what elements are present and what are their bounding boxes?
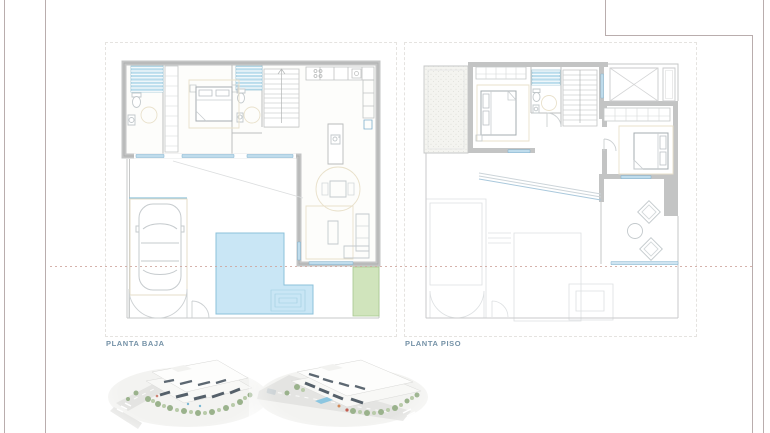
drawing-sheet: PLANTA BAJA PLANTA PISO [0,0,770,433]
sheet-frame-notch [605,0,606,35]
planter-balcony [663,68,675,101]
bedroom-2 [476,85,529,141]
floor-plan-planta-piso [405,43,696,336]
bathroom-fixtures [533,89,557,113]
terrace-table-icon [628,224,643,239]
section-cut-line [50,266,753,267]
plan-viewport-planta-piso [404,42,697,337]
aerial-render-2 [253,351,435,433]
terrace-deck [424,66,468,153]
plan-viewport-planta-baja [105,42,397,337]
kitchen-island [328,124,343,164]
shower-enclosure [532,70,560,85]
wardrobe [604,108,670,121]
sheet-frame-line [752,35,753,433]
lower-floor-ghost [426,199,613,321]
wardrobe [476,67,526,79]
render-fade [249,347,439,433]
gate-swing-arcs [129,289,209,318]
porch [129,161,303,198]
closet [165,66,178,152]
staircase [264,69,299,127]
bedroom-main [189,80,239,128]
garage [129,199,209,318]
sheet-frame-line [763,0,764,433]
sheet-frame-line [4,0,5,433]
car-icon [136,204,184,290]
staircase [563,70,597,126]
aerial-render-1 [100,351,272,433]
bedroom-3 [619,126,673,174]
lounge-chair-icon [638,201,663,261]
garden-strip [353,267,379,316]
sheet-frame-notch [605,35,753,36]
sheet-frame-line [45,0,46,433]
open-to-below-lines [479,173,601,200]
floor-plan-planta-baja [106,43,396,336]
void-double-height [610,68,658,101]
